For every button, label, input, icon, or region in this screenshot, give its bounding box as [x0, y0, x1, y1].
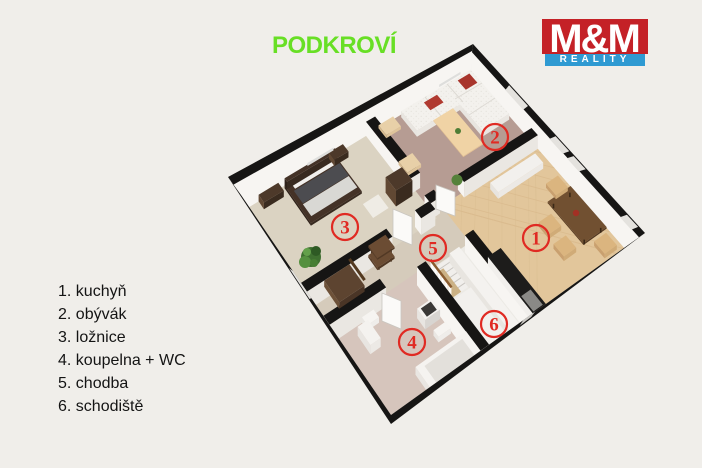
svg-text:1: 1	[531, 229, 541, 250]
svg-text:4: 4	[407, 333, 417, 354]
svg-text:5: 5	[428, 239, 438, 260]
svg-text:3: 3	[340, 218, 350, 239]
svg-text:2: 2	[490, 128, 500, 149]
svg-text:6: 6	[489, 315, 499, 336]
svg-text:M&M: M&M	[549, 19, 639, 54]
